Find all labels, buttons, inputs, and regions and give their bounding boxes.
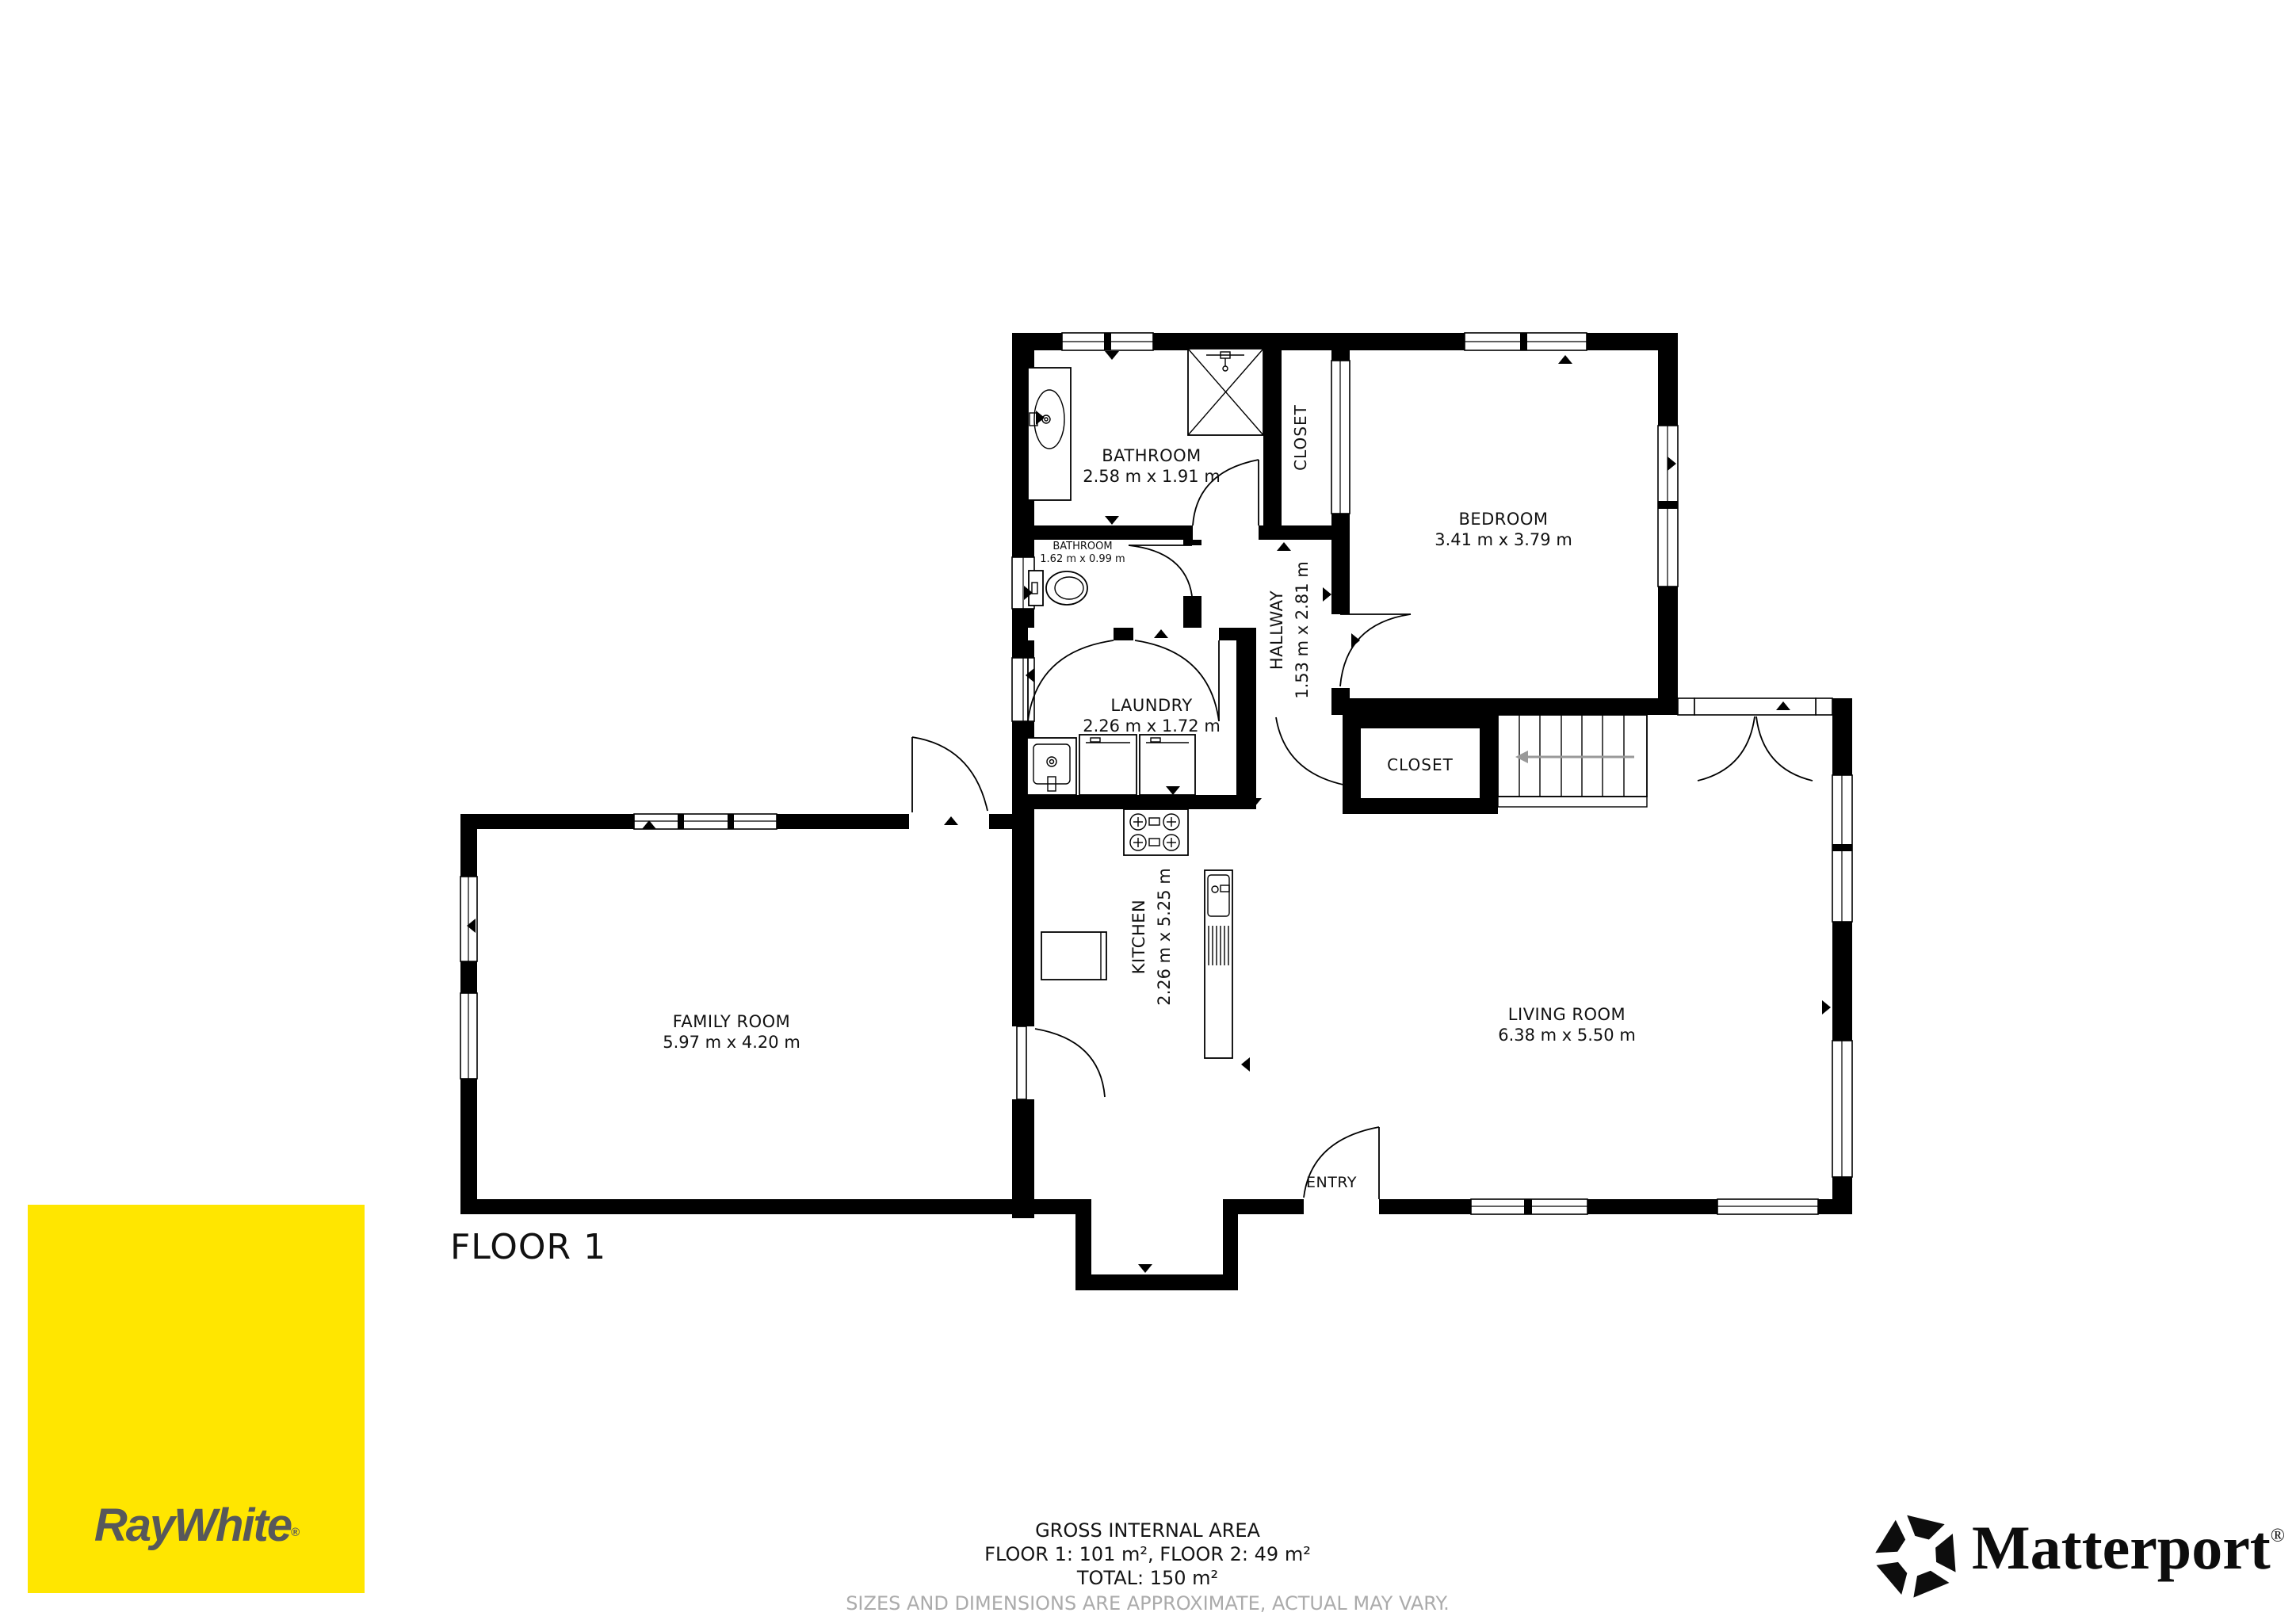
gross-internal-area-title: GROSS INTERNAL AREA bbox=[751, 1519, 1544, 1542]
window-bedroom-top bbox=[1465, 333, 1587, 350]
label-laundry: LAUNDRY bbox=[1110, 696, 1192, 715]
page: BATHROOM 2.58 m x 1.91 m BATHROOM 1.62 m… bbox=[0, 0, 2296, 1624]
dims-laundry: 2.26 m x 1.72 m bbox=[1083, 716, 1221, 736]
label-closet-upper: CLOSET bbox=[1291, 404, 1310, 471]
dims-hallway: 1.53 m x 2.81 m bbox=[1293, 561, 1312, 699]
floor-title: FLOOR 1 bbox=[450, 1227, 606, 1267]
direction-marker-icon bbox=[1822, 1000, 1831, 1015]
stairs bbox=[1498, 715, 1647, 807]
dims-bedroom: 3.41 m x 3.79 m bbox=[1435, 530, 1572, 549]
dims-bathroom-main: 2.58 m x 1.91 m bbox=[1083, 467, 1221, 486]
bedroom-door bbox=[1340, 614, 1411, 686]
matterport-logo: Matterport® bbox=[1874, 1506, 2286, 1609]
laundry-sink-icon bbox=[1027, 738, 1076, 795]
dims-bathroom-small: 1.62 m x 0.99 m bbox=[1040, 553, 1125, 565]
hallway-door bbox=[1276, 717, 1351, 786]
matterport-wordmark: Matterport® bbox=[1972, 1512, 2285, 1584]
window-family-top bbox=[634, 814, 777, 829]
direction-marker-icon bbox=[1138, 1264, 1152, 1273]
french-doors bbox=[1678, 698, 1832, 781]
dims-kitchen: 2.26 m x 5.25 m bbox=[1155, 868, 1174, 1006]
dryer-icon bbox=[1140, 735, 1195, 795]
shower-icon bbox=[1188, 349, 1263, 435]
label-closet-lower: CLOSET bbox=[1387, 755, 1454, 774]
window-living-bottom-left bbox=[1471, 1199, 1587, 1214]
label-bathroom-main: BATHROOM bbox=[1102, 446, 1201, 465]
direction-marker-icon bbox=[1277, 542, 1291, 551]
vanity-sink-icon bbox=[1028, 368, 1071, 500]
direction-marker-icon bbox=[1323, 587, 1331, 602]
floorplan-svg: BATHROOM 2.58 m x 1.91 m BATHROOM 1.62 m… bbox=[444, 325, 1862, 1300]
label-bedroom: BEDROOM bbox=[1458, 510, 1548, 529]
label-kitchen: KITCHEN bbox=[1129, 900, 1148, 975]
stove-icon bbox=[1124, 809, 1188, 855]
window-family-left-lower bbox=[460, 993, 477, 1079]
laundry-door-left bbox=[1028, 640, 1114, 721]
floor-areas: FLOOR 1: 101 m², FLOOR 2: 49 m² bbox=[751, 1542, 1544, 1566]
window-laundry bbox=[1012, 658, 1034, 721]
fridge-icon bbox=[1041, 932, 1106, 980]
matterport-registered-mark: ® bbox=[2271, 1526, 2285, 1546]
kitchen-counter bbox=[1205, 870, 1232, 1058]
family-back-door bbox=[912, 737, 988, 812]
area-summary: GROSS INTERNAL AREA FLOOR 1: 101 m², FLO… bbox=[751, 1519, 1544, 1615]
raywhite-logo: RayWhite® bbox=[28, 1205, 365, 1593]
dims-living-room: 6.38 m x 5.50 m bbox=[1498, 1026, 1636, 1045]
direction-marker-icon bbox=[1351, 633, 1360, 648]
bathroom-small-door bbox=[1129, 545, 1192, 596]
window-family-left-upper bbox=[460, 877, 477, 961]
disclaimer-text: SIZES AND DIMENSIONS ARE APPROXIMATE, AC… bbox=[751, 1592, 1544, 1615]
window-bathroom-top bbox=[1062, 333, 1153, 350]
doors bbox=[912, 460, 1832, 1199]
direction-marker-icon bbox=[1241, 1057, 1250, 1072]
window-bedroom-right bbox=[1658, 426, 1678, 587]
label-hallway: HALLWAY bbox=[1267, 590, 1286, 670]
label-entry: ENTRY bbox=[1306, 1174, 1357, 1191]
direction-marker-icon bbox=[1105, 516, 1119, 525]
toilet-icon bbox=[1029, 571, 1087, 606]
window-living-bottom-right bbox=[1717, 1199, 1818, 1214]
window-living-right-lower bbox=[1832, 1041, 1852, 1177]
matterport-mark-icon bbox=[1874, 1512, 1961, 1599]
total-area: TOTAL: 150 m² bbox=[751, 1566, 1544, 1590]
dims-family-room: 5.97 m x 4.20 m bbox=[663, 1033, 800, 1052]
label-bathroom-small: BATHROOM bbox=[1052, 541, 1112, 552]
raywhite-registered-mark: ® bbox=[291, 1526, 298, 1539]
direction-marker-icon bbox=[1558, 355, 1572, 364]
direction-marker-icon bbox=[1105, 351, 1119, 360]
closet-sliding-door bbox=[1331, 361, 1350, 514]
label-family-room: FAMILY ROOM bbox=[673, 1012, 791, 1031]
label-living-room: LIVING ROOM bbox=[1508, 1005, 1626, 1024]
washer-icon bbox=[1079, 735, 1137, 795]
raywhite-wordmark: RayWhite® bbox=[28, 1499, 365, 1552]
window-living-right-upper bbox=[1832, 775, 1852, 922]
